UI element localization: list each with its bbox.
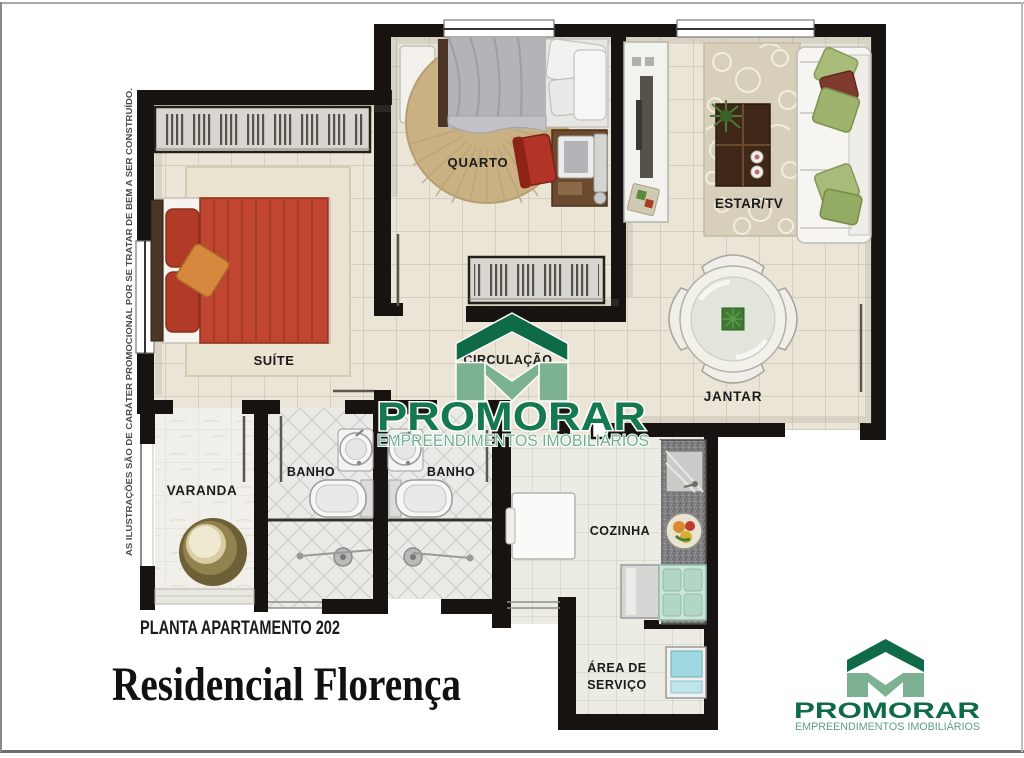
- svg-text:SERVIÇO: SERVIÇO: [587, 678, 647, 692]
- svg-text:EMPREENDIMENTOS IMOBILIÁRIOS: EMPREENDIMENTOS IMOBILIÁRIOS: [795, 720, 980, 733]
- svg-text:JANTAR: JANTAR: [704, 389, 763, 404]
- svg-text:ESTAR/TV: ESTAR/TV: [715, 196, 783, 211]
- svg-text:VARANDA: VARANDA: [167, 483, 238, 498]
- svg-text:COZINHA: COZINHA: [590, 524, 650, 538]
- svg-text:PROMORAR: PROMORAR: [794, 698, 980, 723]
- svg-text:PLANTA APARTAMENTO 202: PLANTA APARTAMENTO 202: [140, 618, 340, 639]
- svg-text:BANHO: BANHO: [427, 465, 475, 479]
- svg-text:BANHO: BANHO: [287, 465, 335, 479]
- svg-text:EMPREENDIMENTOS IMOBILIÁRIOS: EMPREENDIMENTOS IMOBILIÁRIOS: [377, 431, 649, 450]
- svg-text:ÁREA DE: ÁREA DE: [587, 660, 646, 675]
- svg-text:Residencial Florença: Residencial Florença: [112, 658, 461, 711]
- svg-text:QUARTO: QUARTO: [448, 155, 509, 170]
- svg-text:AS ILUSTRAÇÕES SÃO DE CARÁTER: AS ILUSTRAÇÕES SÃO DE CARÁTER PROMOCIONA…: [124, 88, 134, 556]
- svg-text:SUÍTE: SUÍTE: [254, 353, 295, 368]
